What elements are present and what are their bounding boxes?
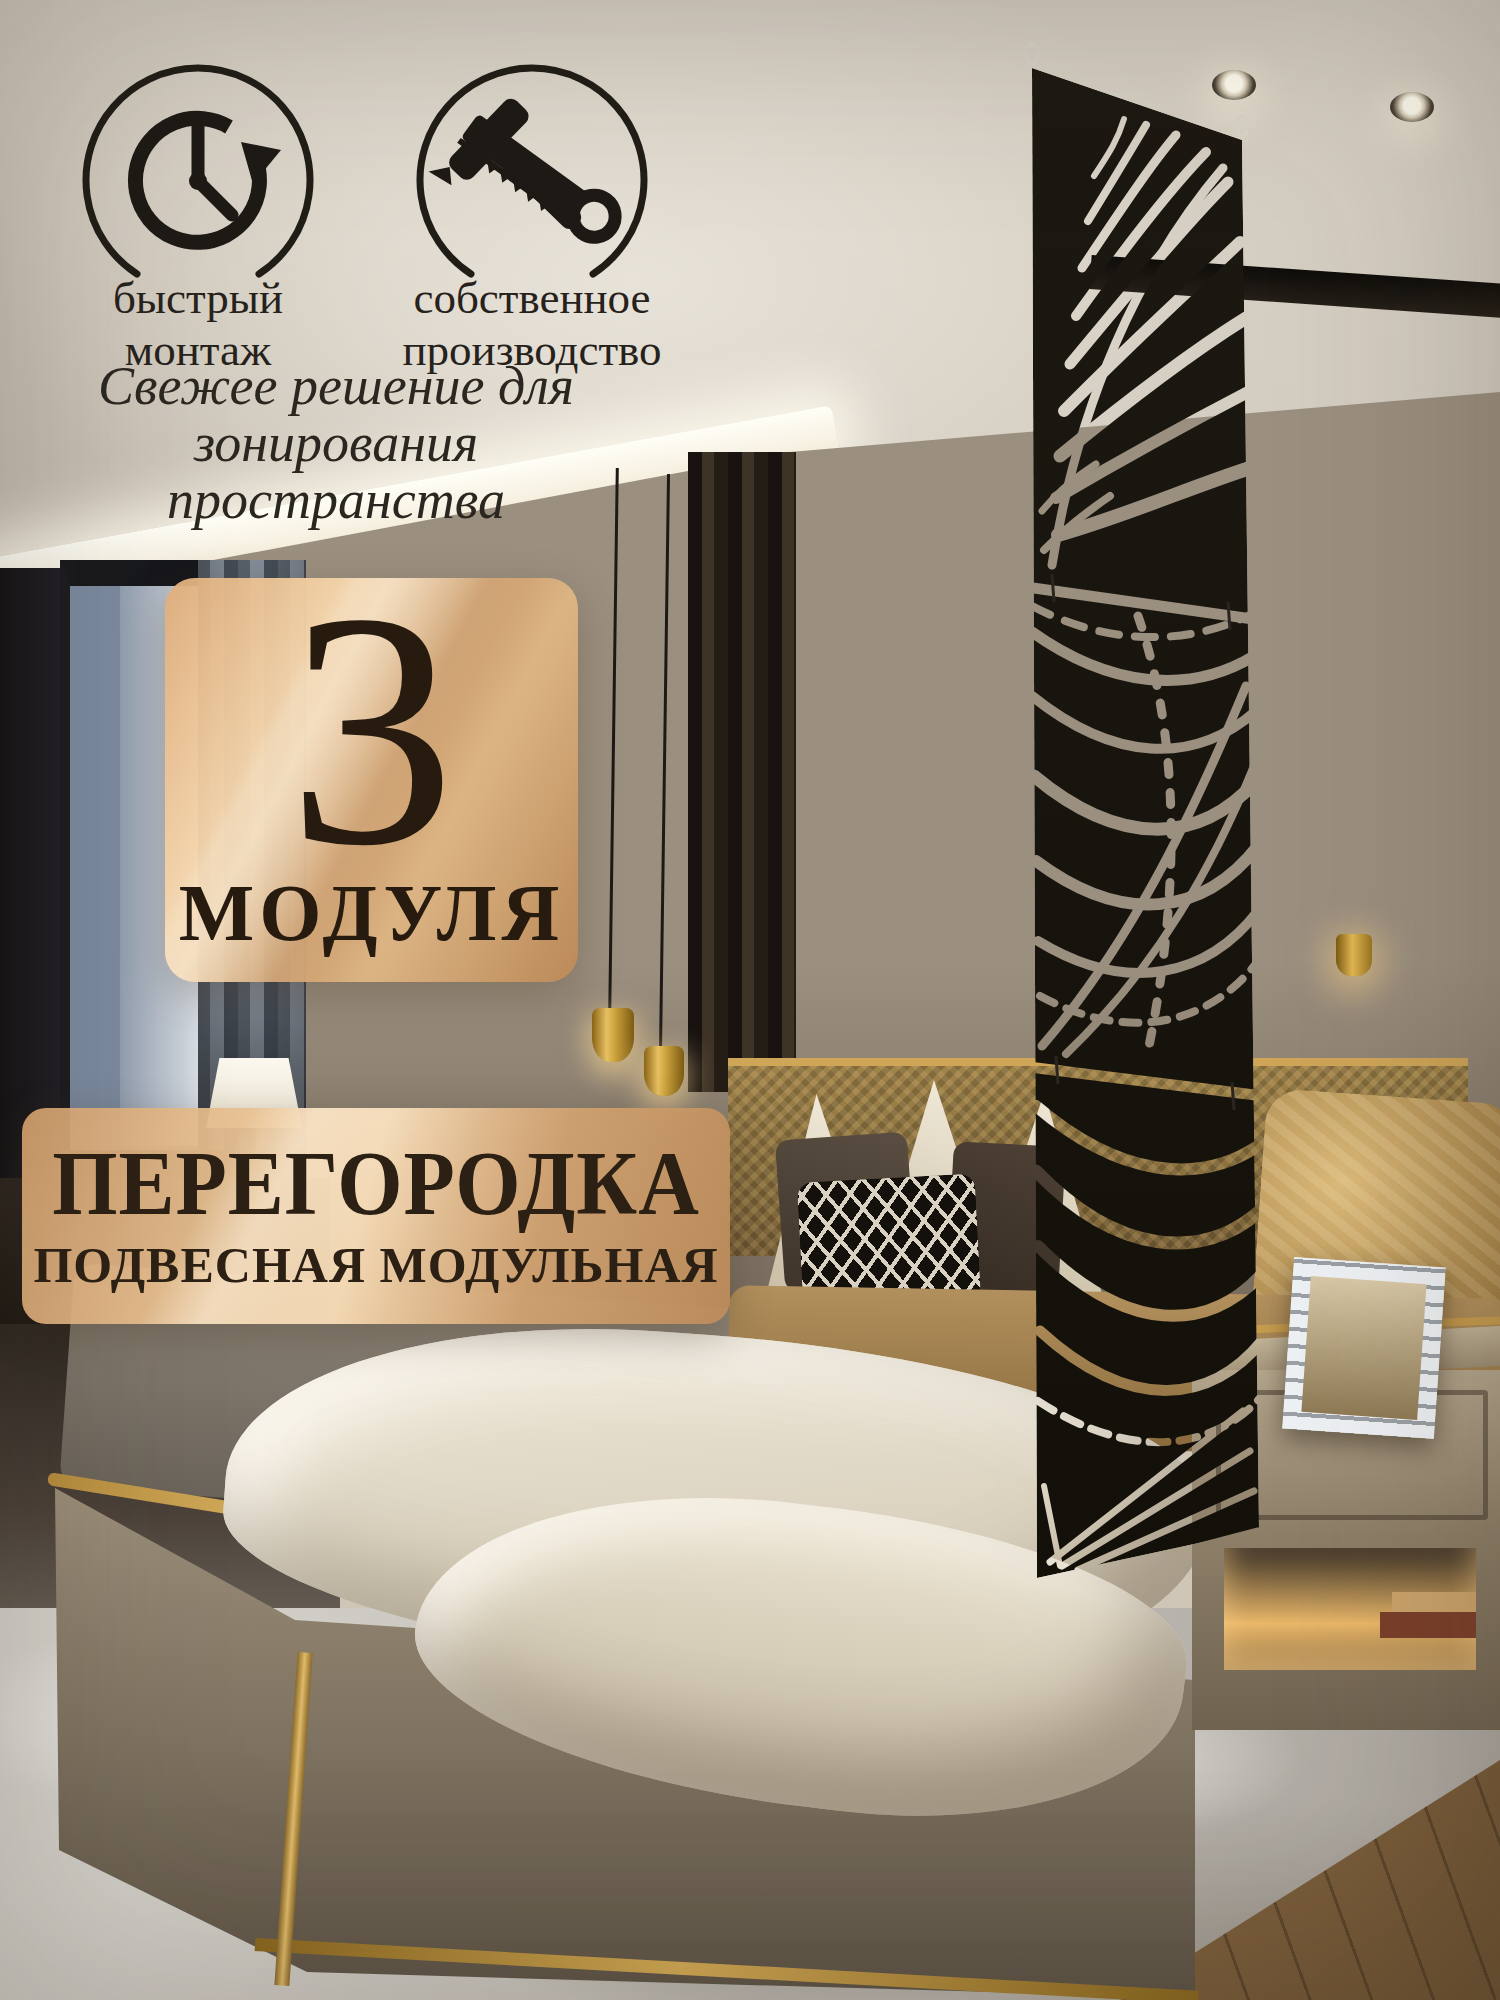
dark-curtain [688, 452, 796, 1092]
modules-count: 3 [288, 592, 456, 867]
product-card: быстрый монтаж собственное [0, 0, 1500, 2000]
product-partition-panel [1018, 40, 1273, 1590]
tagline-line: зонирования пространства [30, 415, 642, 529]
wall-sconce [1336, 934, 1372, 976]
tagline-line: Свежее решение для [30, 358, 642, 415]
product-subtitle: ПОДВЕСНАЯ МОДУЛЬНАЯ [33, 1240, 718, 1290]
modules-label: МОДУЛЯ [179, 877, 564, 949]
feature-line: собственное [402, 272, 661, 324]
modules-count-badge: 3 МОДУЛЯ [165, 578, 578, 982]
ceiling-spotlight [1390, 92, 1434, 122]
mirror-photo-frame-inner [1301, 1276, 1426, 1420]
book [1392, 1592, 1476, 1612]
hammer-saw-tools-icon [407, 56, 657, 306]
gold-pendant-lamp [644, 1046, 684, 1096]
tagline: Свежее решение для зонирования пространс… [30, 358, 642, 530]
gold-pendant-lamp [592, 1008, 634, 1062]
product-title: ПЕРЕГОРОДКА [52, 1139, 700, 1230]
book [1380, 1612, 1476, 1638]
product-title-banner: ПЕРЕГОРОДКА ПОДВЕСНАЯ МОДУЛЬНАЯ [22, 1108, 730, 1324]
feature-own-production: собственное производство [352, 56, 712, 376]
feature-fast-installation: быстрый монтаж [18, 56, 378, 376]
feature-line: быстрый [113, 272, 283, 324]
clock-fast-installation-icon [73, 56, 323, 306]
